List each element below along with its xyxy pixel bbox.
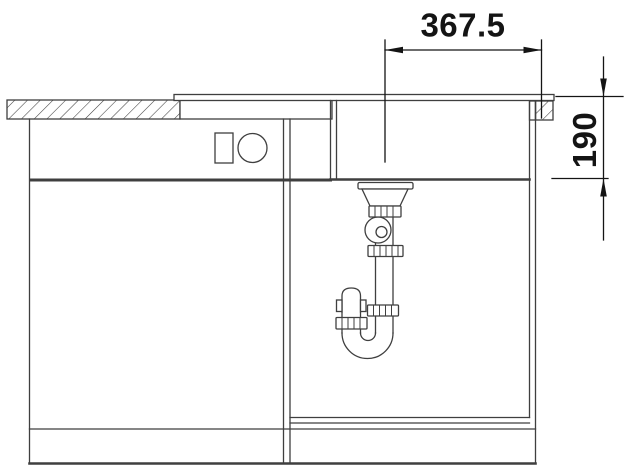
drain-tailpiece-cup	[362, 189, 408, 206]
drain-flange	[358, 183, 413, 190]
drain-nut-riser	[336, 318, 367, 330]
trap-riser-cap	[337, 288, 367, 312]
arrowhead-down-icon	[600, 79, 607, 97]
arrowhead-right-icon	[524, 47, 542, 53]
cabinet-center-divider	[284, 119, 291, 463]
worktop-middle-section	[180, 100, 332, 119]
cabinet-right-side-panel	[530, 101, 536, 464]
overflow-elbow	[365, 217, 391, 243]
front-panel-switch-rect	[215, 133, 233, 163]
dimension-drain-offset: 367.5	[385, 7, 542, 163]
sink-rim-profile	[174, 95, 554, 101]
drain-nut-upper	[369, 206, 401, 217]
cabinet-interior-floor	[290, 418, 530, 424]
technical-drawing-canvas: 367.5 190	[0, 0, 625, 471]
dimension-drain-offset-label: 367.5	[420, 7, 505, 44]
arrowhead-up-icon	[600, 179, 607, 197]
drain-nut-second	[368, 246, 403, 257]
sink-bowl	[331, 101, 530, 180]
drain-and-siphon-assembly	[336, 183, 413, 359]
drain-nut-downpipe-lower	[368, 305, 399, 316]
dimension-bowl-depth: 190	[552, 57, 623, 240]
sink-section-drawing: 367.5 190	[0, 0, 625, 471]
dimension-bowl-depth-label: 190	[566, 112, 603, 169]
arrowhead-left-icon	[385, 47, 403, 53]
worktop-left-hatched-section	[7, 100, 180, 119]
front-panel-knob-circle	[238, 134, 267, 163]
